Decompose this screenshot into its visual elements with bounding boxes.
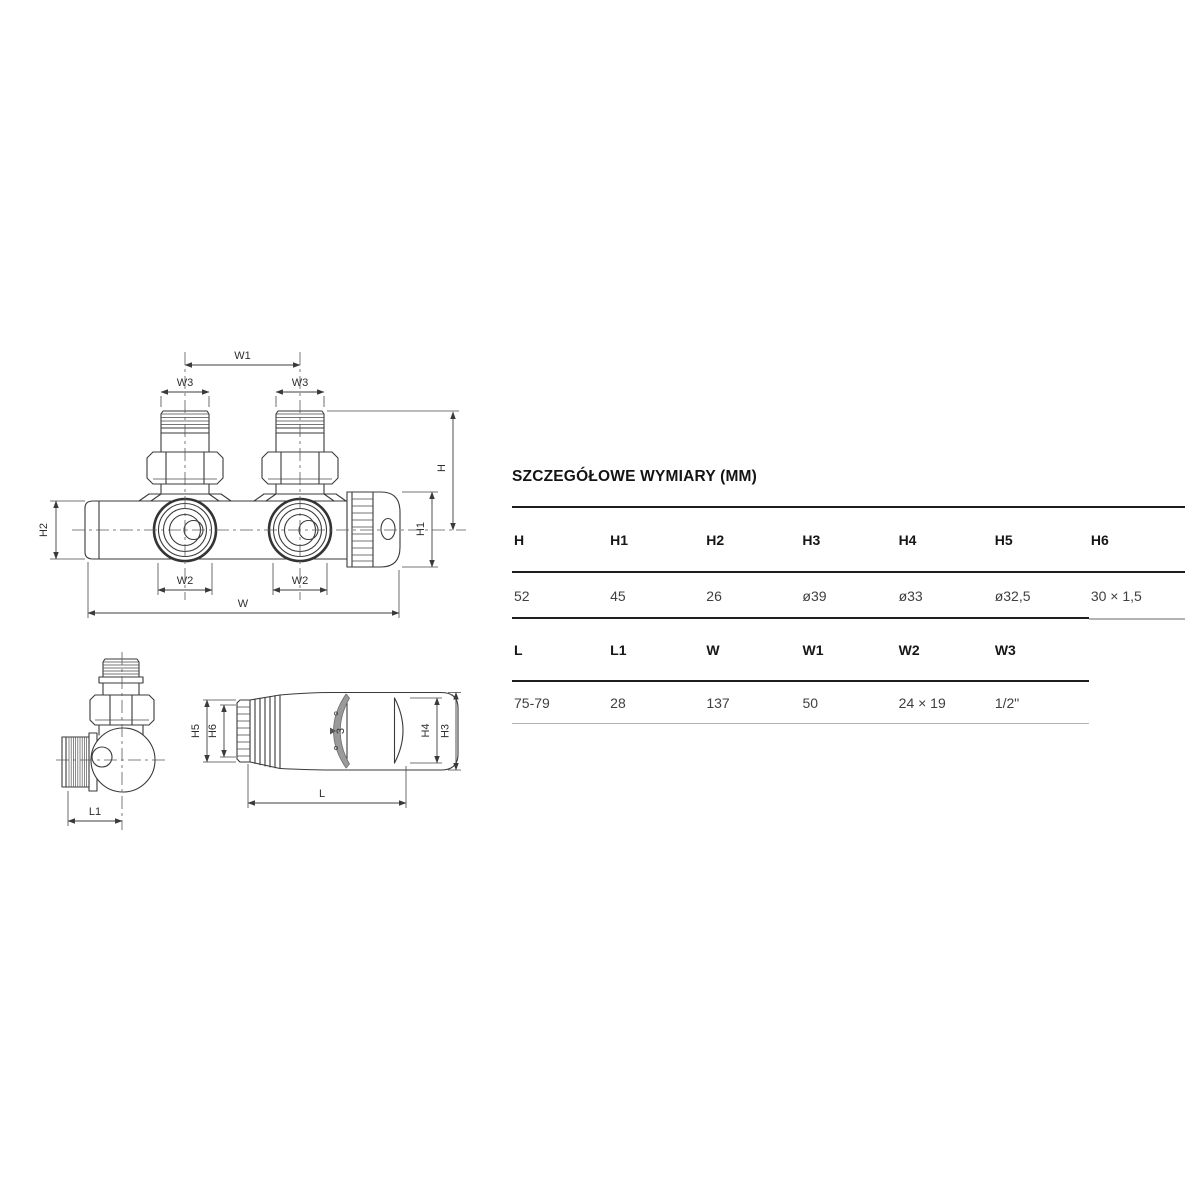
value-cell-h2: 26 [704,588,800,604]
dim-label-h3: H3 [440,724,452,738]
dimensions-table-h: H H1 H2 H3 H4 H5 H6 52 45 26 ø39 ø33 ø32… [512,506,1185,619]
header-cell-h3: H3 [800,532,896,548]
header-cell-h: H [512,532,608,548]
header-cell-l: L [512,642,608,658]
spec-sheet-page: W1 W3 W3 H2 H H1 W2 W2 W [0,0,1200,1200]
dim-label-w: W [238,598,249,610]
dim-label-h6: H6 [207,724,219,738]
value-cell-h5: ø32,5 [993,588,1089,604]
value-cell-h: 52 [512,588,608,604]
head-setting-number: 3 [335,728,347,734]
table-title: SZCZEGÓŁOWE WYMIARY (MM) [512,468,757,486]
table-value-row: 75-79 28 137 50 24 × 19 1/2" [512,682,1089,724]
dim-label-l: L [319,788,325,800]
value-cell-w2: 24 × 19 [897,695,993,711]
header-cell-w3: W3 [993,642,1089,658]
front-view-end-cap [347,492,400,567]
header-cell-w2: W2 [897,642,993,658]
header-cell-h1: H1 [608,532,704,548]
value-cell-w: 137 [704,695,800,711]
table-header-row: H H1 H2 H3 H4 H5 H6 [512,508,1185,573]
dim-label-h2: H2 [38,523,50,537]
dimensions-table-l: L L1 W W1 W2 W3 75-79 28 137 50 24 × 19 … [512,617,1089,724]
front-view-dimensions: W1 W3 W3 H2 H H1 W2 W2 W [38,350,459,618]
table-value-row: 52 45 26 ø39 ø33 ø32,5 30 × 1,5 [512,573,1185,619]
header-cell-h6: H6 [1089,532,1185,548]
value-cell-h3: ø39 [800,588,896,604]
value-cell-w3: 1/2" [993,695,1089,711]
header-cell-h4: H4 [897,532,993,548]
dim-label-w1: W1 [234,350,251,362]
dim-label-l1: L1 [89,806,101,818]
value-cell-h4: ø33 [897,588,993,604]
value-cell-h6: 30 × 1,5 [1089,588,1185,604]
header-cell-l1: L1 [608,642,704,658]
front-view-centerlines [72,352,466,600]
corner-view-valve: L1 [56,652,168,830]
value-cell-w1: 50 [800,695,896,711]
dim-label-h4: H4 [420,723,432,737]
header-cell-w1: W1 [800,642,896,658]
table-divider [1089,619,1185,620]
dim-label-h: H [436,464,448,472]
header-cell-h2: H2 [704,532,800,548]
head-view: 3 H5 H6 H4 H3 L [190,693,461,809]
value-cell-l: 75-79 [512,695,608,711]
value-cell-h1: 45 [608,588,704,604]
header-cell-w: W [704,642,800,658]
dim-label-h1: H1 [415,522,427,536]
value-cell-l1: 28 [608,695,704,711]
dim-label-h5: H5 [190,724,202,738]
header-cell-h5: H5 [993,532,1089,548]
table-header-row: L L1 W W1 W2 W3 [512,619,1089,682]
